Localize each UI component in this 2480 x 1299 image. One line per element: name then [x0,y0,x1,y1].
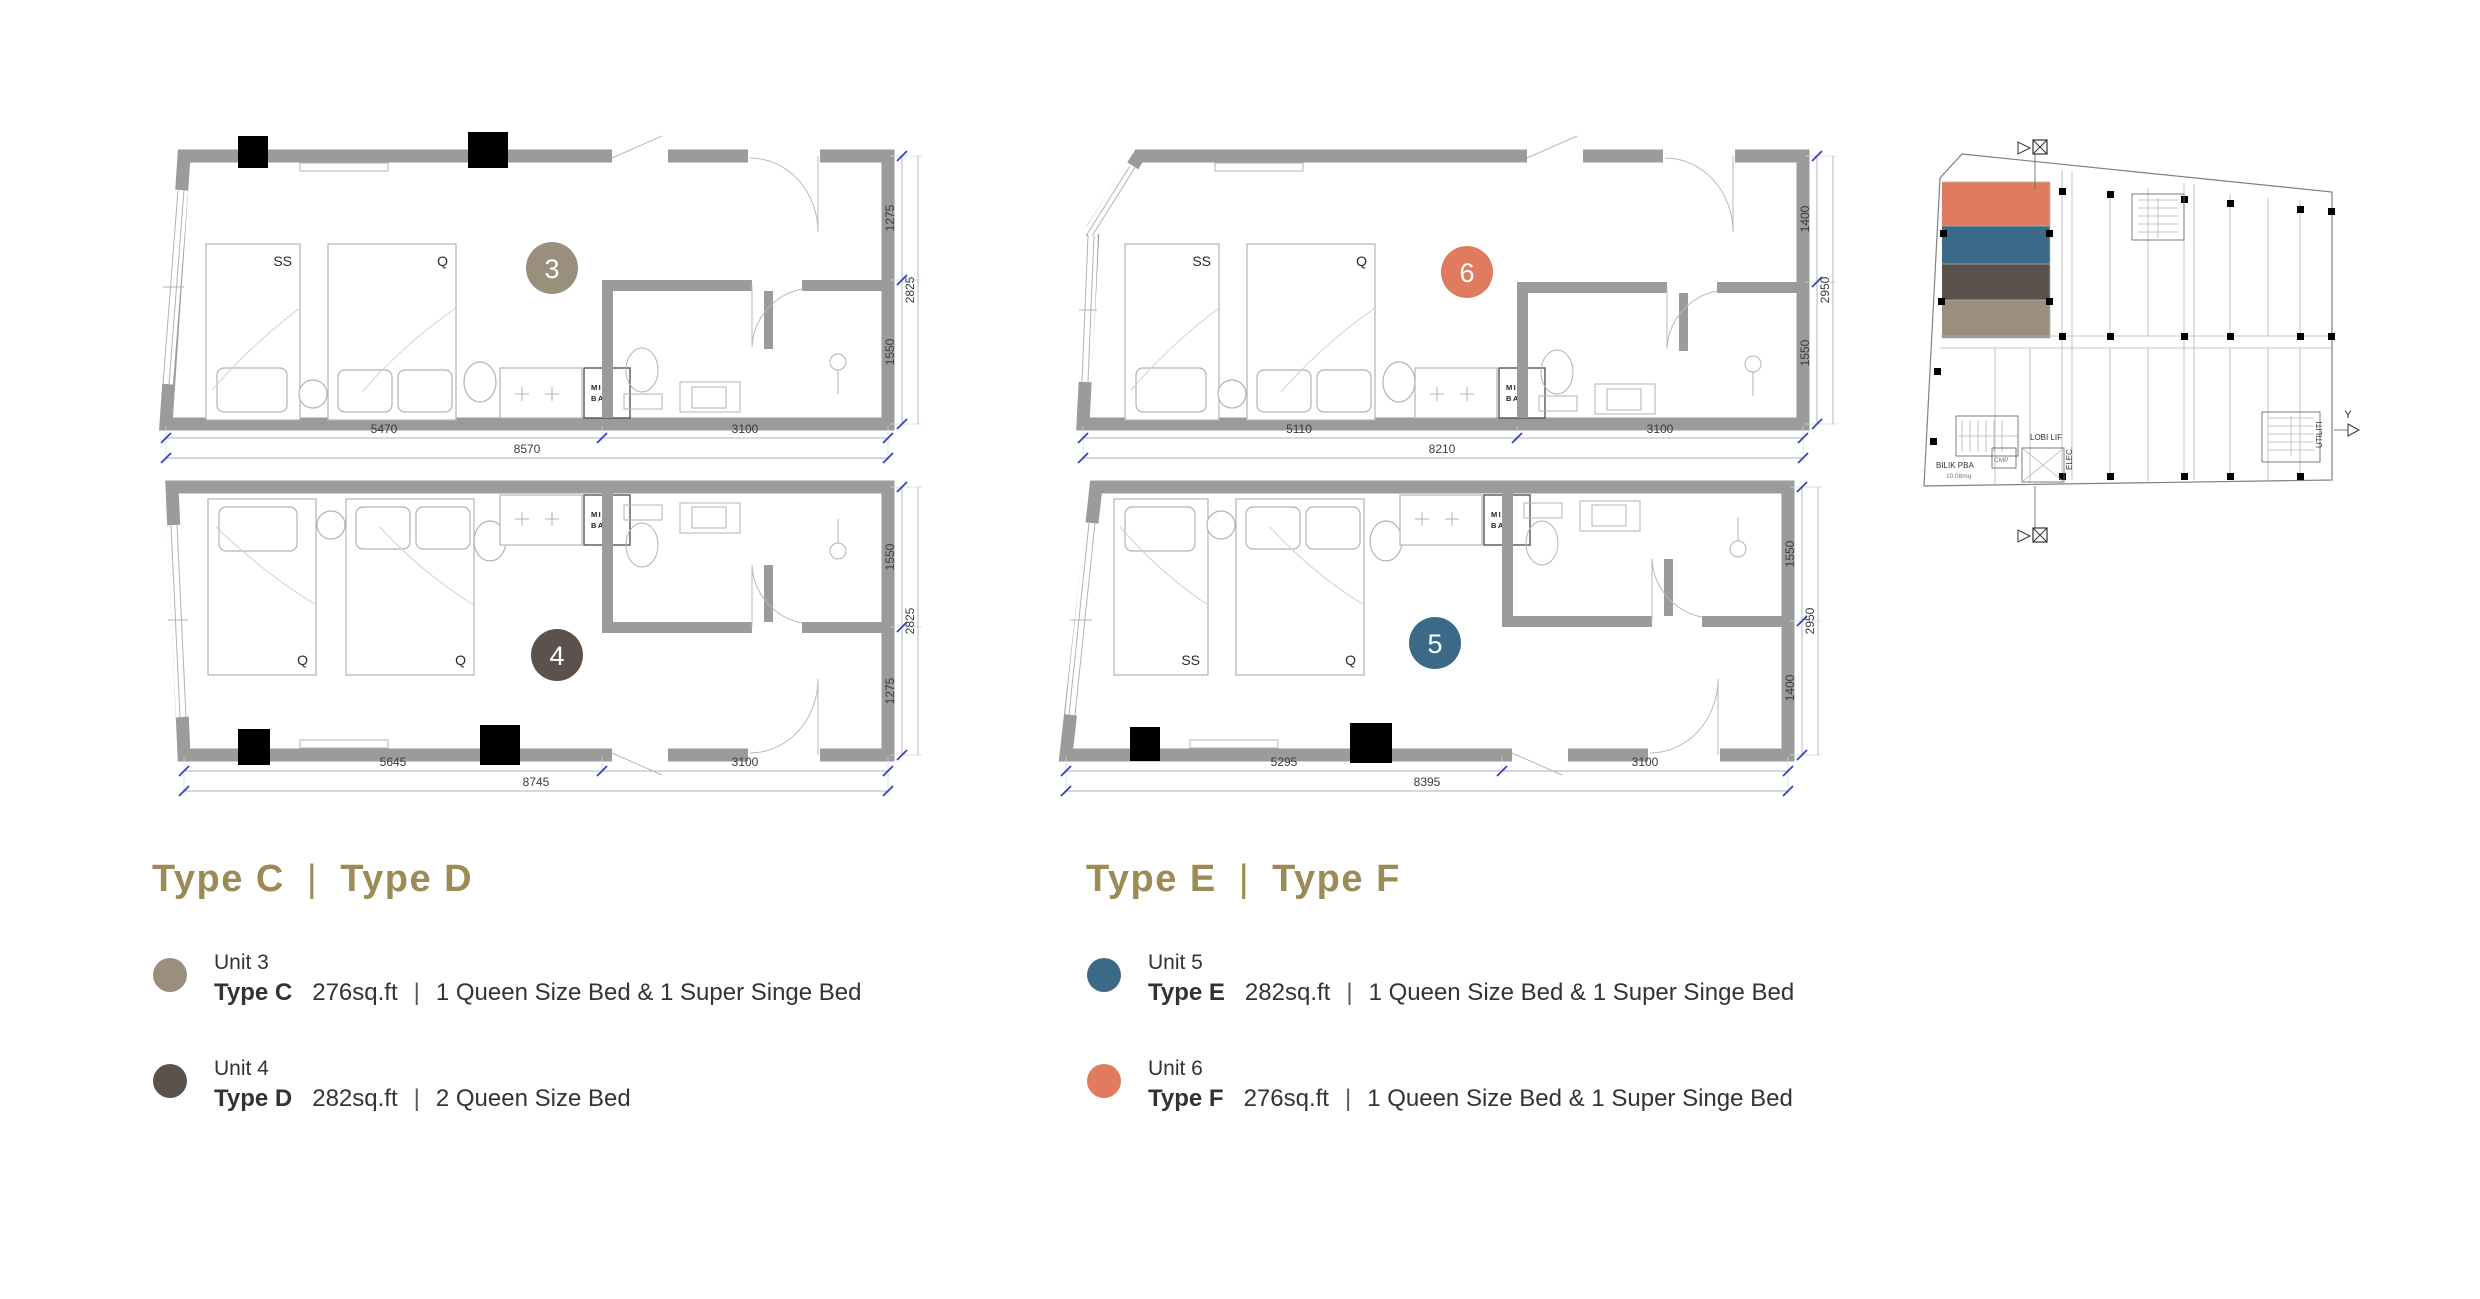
legend-title-b: Type D [340,858,473,900]
bed-label-ss: SS [1192,253,1211,269]
unit-name: Unit 5 [1148,951,1794,975]
dim-right-total: 2950 [1818,276,1832,303]
unit-6-beds: SS Q [1125,244,1415,420]
unit-5-floorplan: SS Q MINI BAR [1050,465,1840,800]
dim-right-total: 2825 [903,607,917,634]
dim-room-width: 5470 [371,422,398,436]
dim-right-top: 1550 [883,543,897,570]
legend-title-sep: | [1239,858,1250,900]
legend-type-e-f: Type E|Type F Unit 5 Type E282sq.ft|1 Qu… [1086,858,1794,1113]
keyplan-label-bilik: BILIK PBA [1936,461,1974,470]
dim-right-bottom: 1550 [883,338,897,365]
dim-right-total: 2950 [1803,607,1817,634]
legend-item-unit-3: Unit 3 Type C276sq.ft|1 Queen Size Bed &… [152,951,862,1007]
unit-4-beds: Q Q [208,499,506,675]
band-type-f [1942,182,2050,226]
column [238,136,268,168]
dim-room-width: 5110 [1286,422,1312,436]
section-marker-bottom [2018,486,2047,542]
dim-right-top: 1550 [1783,540,1797,567]
unit-6-badge: 6 [1441,246,1493,298]
legend-item-unit-4: Unit 4 Type D282sq.ft|2 Queen Size Bed [152,1057,862,1113]
dim-right-total: 2825 [903,276,917,303]
dim-bath-width: 3100 [732,422,759,436]
unit-5-color-dot [1086,957,1122,993]
bed-label-ss: SS [273,253,292,269]
bed-label-q1: Q [297,652,308,668]
unit-description: Type E282sq.ft|1 Queen Size Bed & 1 Supe… [1148,979,1794,1007]
unit-3-floorplan: SS Q MINI BAR [150,132,940,467]
dim-bath-width: 3100 [732,755,759,769]
key-plan: LOBI LIF CMP BILIK PBA 10.08mq ELEC. UTI… [1900,118,2370,563]
dim-bath-width: 3100 [1632,755,1659,769]
dim-room-width: 5295 [1271,755,1298,769]
dim-bath-width: 3100 [1647,422,1674,436]
floorplan-brochure-page: { "colors": { "taupe": "#9A8E7C", "brown… [0,0,2480,1299]
band-type-d [1942,264,2050,300]
side-table [299,380,327,408]
bed-label-ss: SS [1181,652,1200,668]
keyplan-label-utility: UTILITI [2315,421,2324,448]
unit-3-beds: SS Q [206,244,496,420]
unit-3-badge: 3 [526,242,578,294]
unit-name: Unit 6 [1148,1057,1793,1081]
stool [464,362,496,402]
unit-5-beds: SS Q [1114,499,1402,675]
column [1130,727,1160,761]
dim-total-width: 8210 [1429,442,1456,456]
legend-title-b: Type F [1272,858,1401,900]
unit-name: Unit 4 [214,1057,631,1081]
unit-number: 6 [1459,258,1474,288]
dim-right-top: 1400 [1798,205,1812,232]
unit-4-floorplan: Q Q MINI BAR [150,465,940,800]
keyplan-label-lobby: LOBI LIF [2030,433,2062,442]
legend-title: Type C|Type D [152,858,862,901]
keyplan-label-cmp: CMP [1994,457,2008,464]
unit-6-floorplan: SS Q MINI BAR [1065,132,1855,467]
bed-label-q: Q [1345,652,1356,668]
unit-number: 5 [1427,629,1442,659]
unit-4-badge: 4 [531,629,583,681]
legend-title-sep: | [307,858,318,900]
unit-description: Type D282sq.ft|2 Queen Size Bed [214,1085,631,1113]
band-type-e [1942,226,2050,264]
column [238,729,270,765]
unit-name: Unit 3 [214,951,862,975]
dim-total-width: 8745 [523,775,550,789]
axis-y-label: Y [2344,409,2352,421]
unit-number: 3 [544,254,559,284]
highlight-bands [1942,182,2050,338]
unit-4-color-dot [152,1063,188,1099]
dim-total-width: 8570 [514,442,541,456]
dim-right-bottom: 1275 [883,677,897,704]
unit-description: Type F276sq.ft|1 Queen Size Bed & 1 Supe… [1148,1085,1793,1113]
legend-title: Type E|Type F [1086,858,1794,901]
stool [1383,362,1415,402]
band-type-c [1942,300,2050,338]
column [1350,723,1392,763]
column [468,132,508,168]
axis-y-marker: Y [2334,409,2359,436]
dim-total-width: 8395 [1414,775,1441,789]
dim-room-width: 5645 [380,755,407,769]
bed-label-q: Q [437,253,448,269]
legend-title-a: Type C [152,858,285,900]
dim-right-top: 1275 [883,204,897,231]
bed-label-q: Q [1356,253,1367,269]
bed-label-q2: Q [455,652,466,668]
unit-number: 4 [549,641,564,671]
unit-5-badge: 5 [1409,617,1461,669]
unit-3-color-dot [152,957,188,993]
keyplan-label-elec: ELEC. [2065,447,2074,470]
dim-right-bottom: 1400 [1783,674,1797,701]
unit-description: Type C276sq.ft|1 Queen Size Bed & 1 Supe… [214,979,862,1007]
legend-item-unit-5: Unit 5 Type E282sq.ft|1 Queen Size Bed &… [1086,951,1794,1007]
legend-title-a: Type E [1086,858,1217,900]
stool [1370,521,1402,561]
side-table [1207,511,1235,539]
unit-6-color-dot [1086,1063,1122,1099]
side-table [1218,380,1246,408]
keyplan-label-bilik-area: 10.08mq [1946,473,1972,480]
legend-item-unit-6: Unit 6 Type F276sq.ft|1 Queen Size Bed &… [1086,1057,1794,1113]
legend-type-c-d: Type C|Type D Unit 3 Type C276sq.ft|1 Qu… [152,858,862,1113]
dim-right-bottom: 1550 [1798,339,1812,366]
column [480,725,520,765]
side-table [317,511,345,539]
